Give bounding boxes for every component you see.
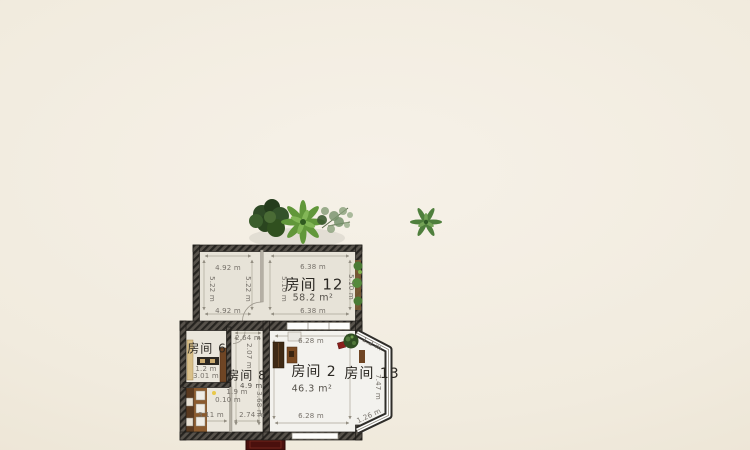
potted-plant-room2[interactable]	[344, 334, 359, 349]
bench-cushion	[200, 359, 205, 363]
dim-r6-height: 3.01 m	[193, 372, 219, 380]
dim-r8-side: 2.07 m	[245, 343, 253, 369]
cabinet-panel	[289, 351, 294, 357]
room2-label[interactable]: 房间 2	[291, 361, 336, 381]
dim-r12l-bottom: 4.92 m	[215, 307, 241, 315]
bench-cushion	[210, 359, 215, 363]
room13-label[interactable]: 房间 13	[344, 363, 399, 383]
dim-r2-top: 6.28 m	[298, 337, 324, 345]
dim-kitchen-bottom-left: 3.11 m	[198, 411, 224, 419]
dim-r8-door: 1.9 m	[226, 388, 247, 396]
dim-r2-bottom: 6.28 m	[298, 412, 324, 420]
room8-label[interactable]: 房间 8	[227, 367, 266, 384]
dim-r8-gap: 0.10 m	[215, 396, 241, 404]
dim-r12r-bottom: 6.38 m	[300, 307, 326, 315]
plant-cluster[interactable]	[249, 199, 353, 248]
room12-area: 58.2 m²	[293, 293, 334, 304]
dim-r12r-top: 6.38 m	[300, 263, 326, 271]
dim-r13-side: 7.47 m	[374, 374, 382, 400]
dim-r12l-top: 4.92 m	[215, 264, 241, 272]
window-room2-bottom	[292, 433, 338, 439]
bush-plant	[249, 199, 289, 237]
dry-shrub-plant	[317, 207, 353, 233]
small-tree[interactable]	[410, 207, 442, 237]
dim-kitchen-side: 3.68 m	[255, 391, 263, 417]
dim-r12l-left: 5.22 m	[208, 276, 216, 302]
bay-bench[interactable]	[359, 350, 365, 363]
room12-label[interactable]: 房间 12	[285, 274, 344, 295]
dim-r12r-right: 5.10 m	[347, 274, 355, 300]
dim-r12l-right: 5.22 m	[244, 276, 252, 302]
floor-plan-canvas: 房间 12 58.2 m² 房间 6 房间 8 4.9 m² 房间 2 46.3…	[0, 0, 750, 450]
dim-r12r-left: 5.10 m	[280, 276, 288, 302]
dim-r8-top: 2.64 m	[235, 334, 261, 342]
red-sideboard[interactable]	[246, 439, 285, 450]
partition-room12	[261, 250, 264, 302]
room6-label[interactable]: 房间 6	[187, 340, 226, 357]
appliance-icon	[196, 391, 205, 400]
window-room2-top	[287, 323, 350, 330]
ceiling-light-icon[interactable]	[212, 391, 216, 395]
room2-area: 46.3 m²	[292, 384, 333, 395]
